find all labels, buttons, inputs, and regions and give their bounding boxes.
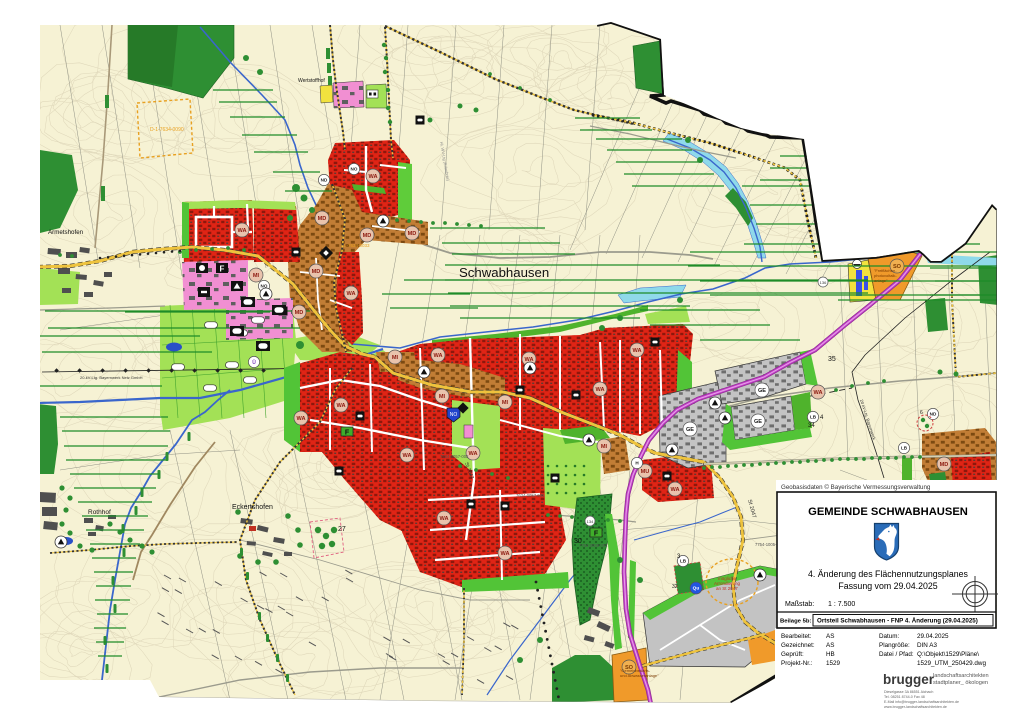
svg-text:MI: MI <box>392 355 399 361</box>
svg-text:Datum:: Datum: <box>879 633 900 640</box>
svg-text:Ü: Ü <box>252 359 256 366</box>
svg-text:Fassung vom 29.04.2025: Fassung vom 29.04.2025 <box>838 581 937 591</box>
svg-text:Projekt-Nr.:: Projekt-Nr.: <box>781 660 813 667</box>
svg-text:WA: WA <box>433 353 442 359</box>
svg-text:Schwabhausen: Schwabhausen <box>459 265 549 280</box>
svg-text:L-7634-0033: L-7634-0033 <box>344 243 370 248</box>
svg-text:LB: LB <box>810 415 817 420</box>
svg-text:NO: NO <box>450 412 458 418</box>
svg-text:Q:\Objekt\1529\Pläne\: Q:\Objekt\1529\Pläne\ <box>917 651 979 658</box>
svg-text:7634-0057-002: 7634-0057-002 <box>440 454 469 459</box>
svg-text:MD: MD <box>363 233 372 239</box>
svg-text:GEMEINDE SCHWABHAUSEN: GEMEINDE SCHWABHAUSEN <box>808 506 968 518</box>
svg-text:DIN A3: DIN A3 <box>917 642 937 649</box>
svg-text:GE: GE <box>758 388 766 394</box>
svg-text:brugger: brugger <box>883 672 935 687</box>
svg-text:Geobasisdaten © Bayerische Ver: Geobasisdaten © Bayerische Vermessungsve… <box>781 484 931 491</box>
svg-text:MU: MU <box>641 469 650 475</box>
svg-text:WA: WA <box>402 453 411 459</box>
svg-text:Tel. 08251 8744-0 Fax 48: Tel. 08251 8744-0 Fax 48 <box>884 695 925 699</box>
svg-text:WA: WA <box>670 487 679 493</box>
svg-text:Datei / Pfad:: Datei / Pfad: <box>879 651 914 658</box>
svg-text:7634-0057-001: 7634-0057-001 <box>516 493 545 498</box>
svg-text:Wertstoffhof: Wertstoffhof <box>298 78 325 84</box>
svg-text:MD: MD <box>940 462 949 468</box>
svg-text:ND: ND <box>321 178 328 183</box>
svg-text:136: 136 <box>820 280 827 285</box>
svg-text:6: 6 <box>920 410 923 416</box>
svg-text:GE: GE <box>686 427 694 433</box>
svg-text:1 : 7.500: 1 : 7.500 <box>828 601 855 608</box>
svg-text:AS: AS <box>826 633 834 640</box>
svg-text:an St 2047: an St 2047 <box>716 586 738 591</box>
svg-text:Plangröße:: Plangröße: <box>879 642 910 649</box>
svg-text:1529: 1529 <box>826 660 841 667</box>
svg-text:ND: ND <box>930 412 937 417</box>
svg-text:32: 32 <box>672 584 678 590</box>
svg-text:F: F <box>594 531 599 538</box>
svg-text:WA: WA <box>468 451 477 457</box>
svg-text:GE: GE <box>754 419 762 425</box>
svg-text:MD: MD <box>318 216 327 222</box>
svg-text:LB: LB <box>680 559 687 564</box>
svg-text:1529_UTM_250429.dwg: 1529_UTM_250429.dwg <box>917 660 986 667</box>
svg-text:MD: MD <box>295 310 304 316</box>
svg-text:MI: MI <box>601 444 608 450</box>
svg-text:7754-0006-001: 7754-0006-001 <box>579 543 608 548</box>
svg-text:Eckertshofen: Eckertshofen <box>232 504 273 511</box>
svg-text:Beilage 5b:: Beilage 5b: <box>780 619 811 625</box>
svg-text:WA: WA <box>368 174 377 180</box>
svg-text:Armetshofen: Armetshofen <box>48 229 84 236</box>
svg-text:WA: WA <box>595 387 604 393</box>
svg-text:WA: WA <box>500 551 509 557</box>
svg-text:WA: WA <box>813 390 822 396</box>
svg-text:E-Mail info@brugger-landschaft: E-Mail info@brugger-landschaftsarchitekt… <box>884 700 959 704</box>
svg-text:WA: WA <box>336 403 345 409</box>
svg-text:35: 35 <box>828 356 836 363</box>
svg-text:anlage": anlage" <box>874 278 888 283</box>
svg-text:www.brugger-landschaftsarchite: www.brugger-landschaftsarchitekten.de <box>884 705 947 709</box>
svg-text:Qu: Qu <box>693 586 700 592</box>
svg-text:AS: AS <box>826 642 834 649</box>
svg-text:D-1-7634-0090: D-1-7634-0090 <box>150 127 184 133</box>
svg-text:WA: WA <box>237 228 246 234</box>
svg-text:Maßstab:: Maßstab: <box>785 601 814 608</box>
svg-text:WA: WA <box>632 348 641 354</box>
svg-text:Bearbeitet:: Bearbeitet: <box>781 633 812 640</box>
svg-text:LB: LB <box>901 446 908 451</box>
svg-text:WA: WA <box>439 516 448 522</box>
svg-text:29.04.2025: 29.04.2025 <box>917 633 949 640</box>
svg-text:Dieselgasse 3A 86551 Aichach: Dieselgasse 3A 86551 Aichach <box>884 690 933 694</box>
svg-text:Ortsteil Schwabhausen - FNP 4.: Ortsteil Schwabhausen - FNP 4. Änderung … <box>817 618 978 625</box>
svg-text:20-kV-Ltg. Bayernwerk Netz Gmb: 20-kV-Ltg. Bayernwerk Netz GmbH <box>80 375 143 380</box>
svg-text:WA: WA <box>346 291 355 297</box>
svg-text:und Abwasseranlage": und Abwasseranlage" <box>620 673 659 678</box>
svg-text:MD: MD <box>312 269 321 275</box>
svg-text:MD: MD <box>408 231 417 237</box>
svg-text:34: 34 <box>808 423 815 429</box>
svg-text:MI: MI <box>502 400 509 406</box>
svg-text:MI: MI <box>253 273 260 279</box>
svg-text:MI: MI <box>439 394 446 400</box>
svg-text:F: F <box>220 264 225 273</box>
svg-text:F: F <box>345 430 350 437</box>
svg-text:27: 27 <box>338 526 346 533</box>
svg-text:NO: NO <box>351 167 358 172</box>
svg-text:Rothhof: Rothhof <box>88 509 111 516</box>
svg-text:134: 134 <box>587 519 594 524</box>
svg-text:4. Änderung des Flächennutzung: 4. Änderung des Flächennutzungsplanes <box>808 569 969 579</box>
svg-text:Gezeichnet:: Gezeichnet: <box>781 642 815 649</box>
svg-text:HB: HB <box>826 651 835 658</box>
svg-text:WA: WA <box>296 416 305 422</box>
svg-text:landschaftsarchitekten: landschaftsarchitekten <box>933 673 989 679</box>
svg-text:Geprüft:: Geprüft: <box>781 651 804 658</box>
svg-text:stadtplaner_ ökologen: stadtplaner_ ökologen <box>933 680 988 686</box>
